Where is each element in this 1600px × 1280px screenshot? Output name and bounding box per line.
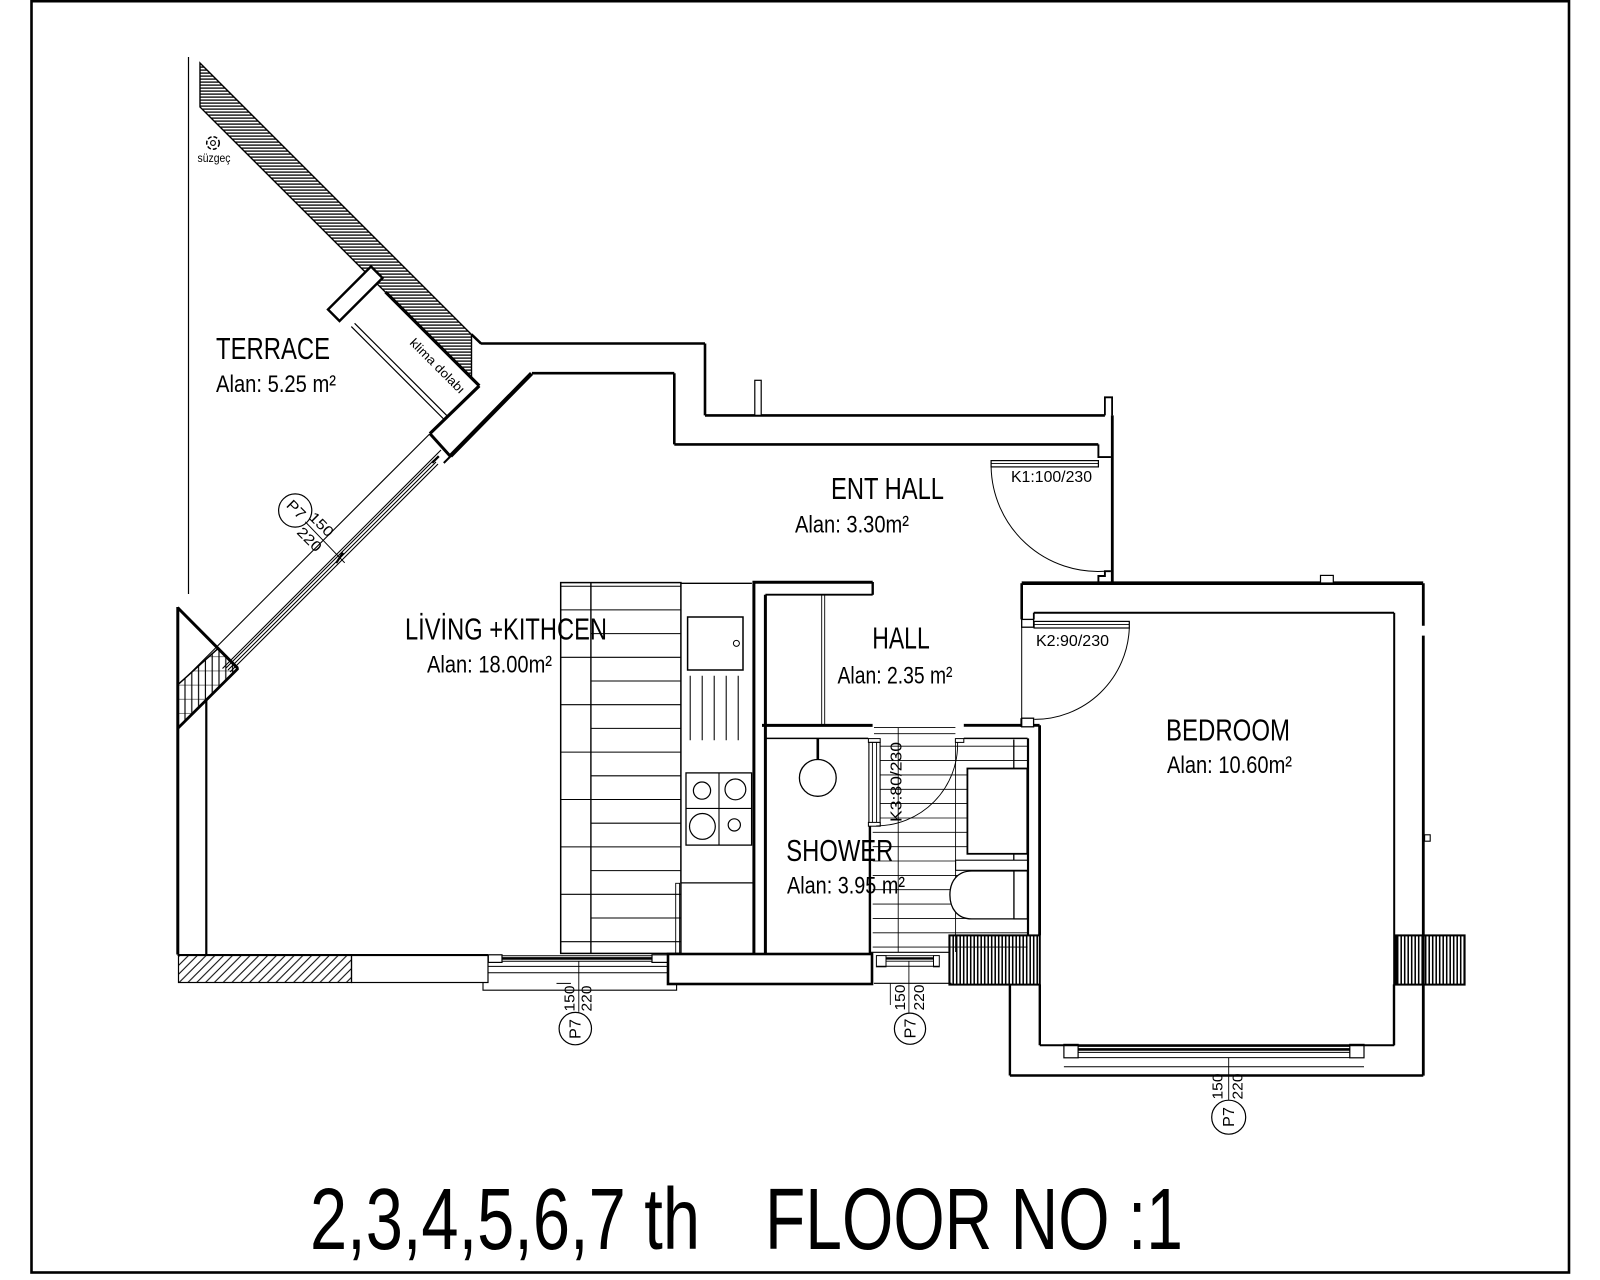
svg-text:K2:90/230: K2:90/230: [1036, 633, 1109, 650]
svg-text:150: 150: [893, 985, 909, 1011]
svg-text:Alan: 5.25 m²: Alan: 5.25 m²: [216, 371, 336, 398]
svg-text:220: 220: [912, 985, 928, 1011]
svg-text:Alan: 10.60m²: Alan: 10.60m²: [1167, 752, 1292, 779]
svg-text:HALL: HALL: [872, 620, 930, 655]
svg-text:150: 150: [1211, 1074, 1227, 1100]
svg-text:ENT HALL: ENT HALL: [831, 471, 944, 506]
svg-text:P7: P7: [283, 497, 309, 523]
svg-text:2,3,4,5,6,7 th: 2,3,4,5,6,7 th: [310, 1171, 700, 1268]
svg-text:BEDROOM: BEDROOM: [1166, 713, 1290, 748]
svg-text:P7: P7: [902, 1019, 919, 1039]
svg-text:P7: P7: [1221, 1107, 1238, 1127]
svg-text:SHOWER: SHOWER: [786, 833, 893, 868]
svg-text:K1:100/230: K1:100/230: [1011, 469, 1092, 486]
svg-text:K3:80/230: K3:80/230: [889, 742, 906, 822]
svg-text:TERRACE: TERRACE: [216, 331, 330, 366]
svg-text:Alan: 2.35 m²: Alan: 2.35 m²: [838, 662, 953, 689]
svg-text:LİVİNG +KITHCEN: LİVİNG +KITHCEN: [405, 612, 607, 647]
svg-text:150: 150: [563, 986, 579, 1012]
svg-text:220: 220: [1231, 1074, 1247, 1100]
svg-text:FLOOR NO :1: FLOOR NO :1: [765, 1171, 1183, 1268]
svg-text:süzgeç: süzgeç: [198, 151, 231, 165]
svg-text:Alan: 3.95 m²: Alan: 3.95 m²: [787, 873, 905, 900]
svg-text:Alan: 3.30m²: Alan: 3.30m²: [795, 512, 909, 539]
svg-text:P7: P7: [568, 1019, 585, 1039]
svg-text:220: 220: [580, 986, 596, 1012]
svg-text:Alan: 18.00m²: Alan: 18.00m²: [427, 652, 552, 679]
